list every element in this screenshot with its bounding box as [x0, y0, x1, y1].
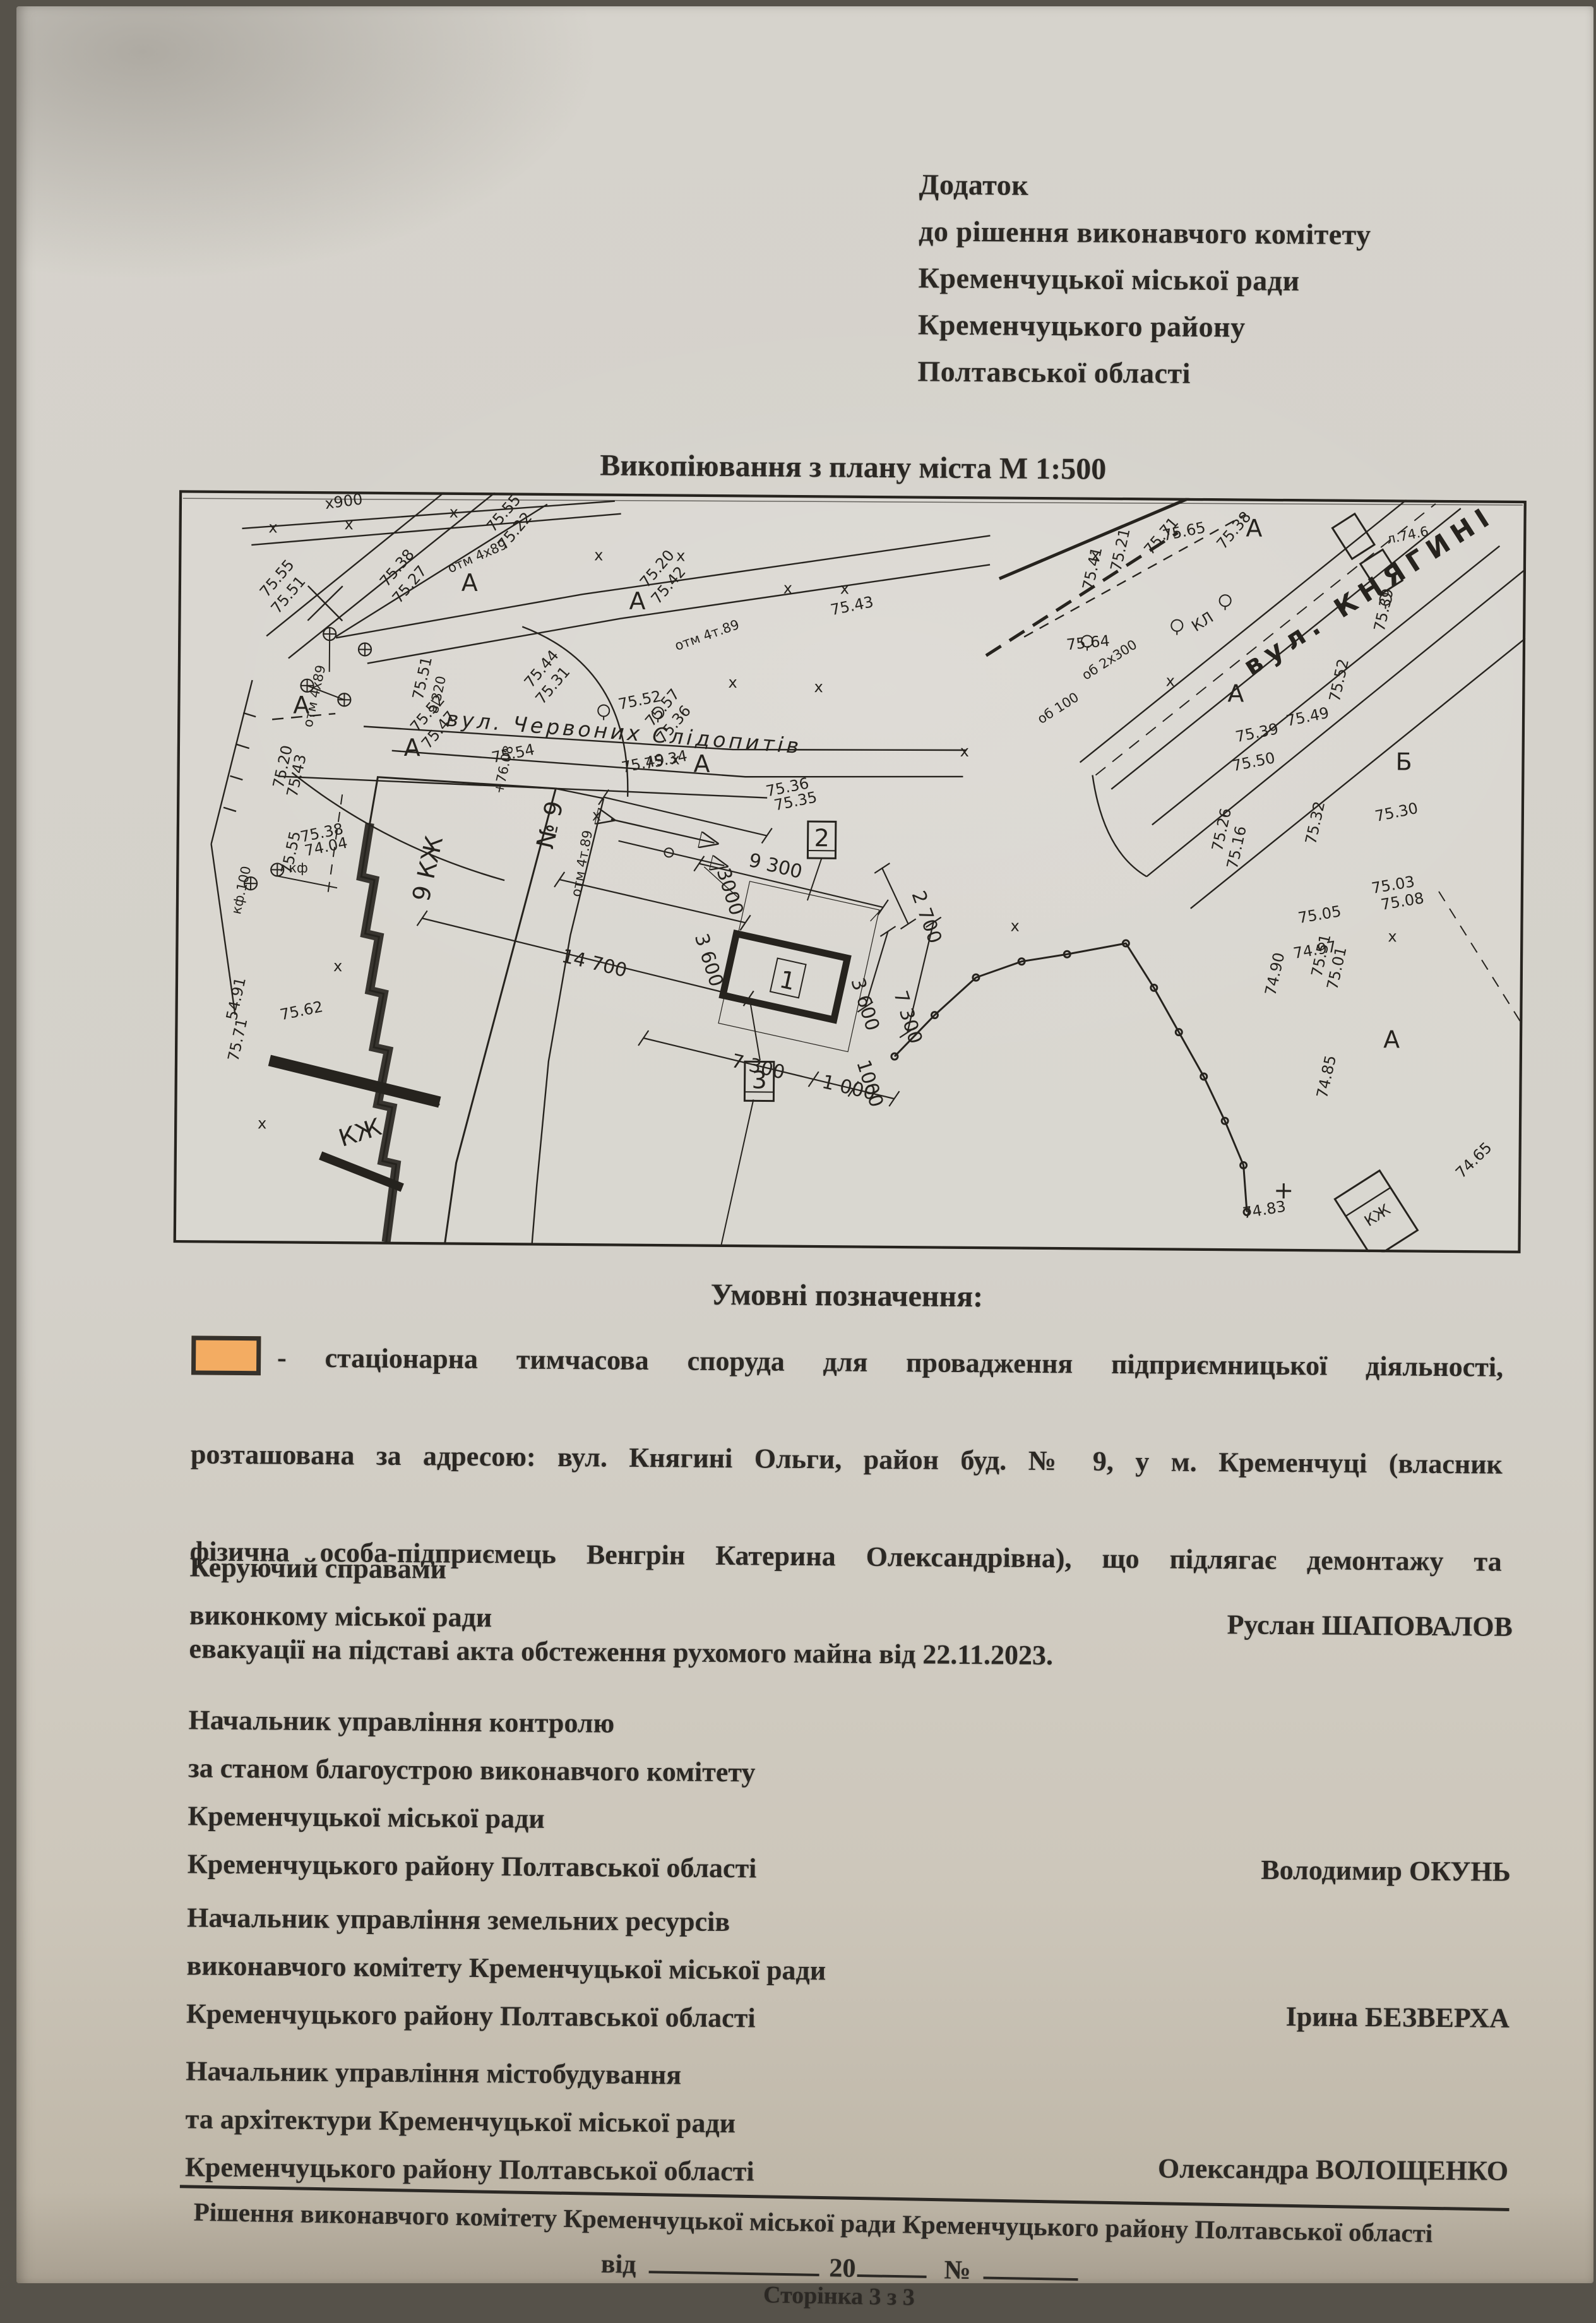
- date-blank: [648, 2252, 819, 2276]
- page-content: Додаток до рішення виконавчого комітету …: [0, 1, 1593, 2291]
- year-blank: [857, 2255, 927, 2278]
- footer-date-label: від: [601, 2250, 636, 2279]
- footer-number-label: №: [944, 2255, 971, 2285]
- document-page: Додаток до рішення виконавчого комітету …: [16, 6, 1593, 2283]
- footer-block: Рішення виконавчого комітету Кременчуцьк…: [0, 0, 1596, 2304]
- footer-year-prefix: 20: [829, 2254, 856, 2283]
- number-blank: [983, 2257, 1078, 2281]
- footer-decision-line: Рішення виконавчого комітету Кременчуцьк…: [125, 2195, 1502, 2250]
